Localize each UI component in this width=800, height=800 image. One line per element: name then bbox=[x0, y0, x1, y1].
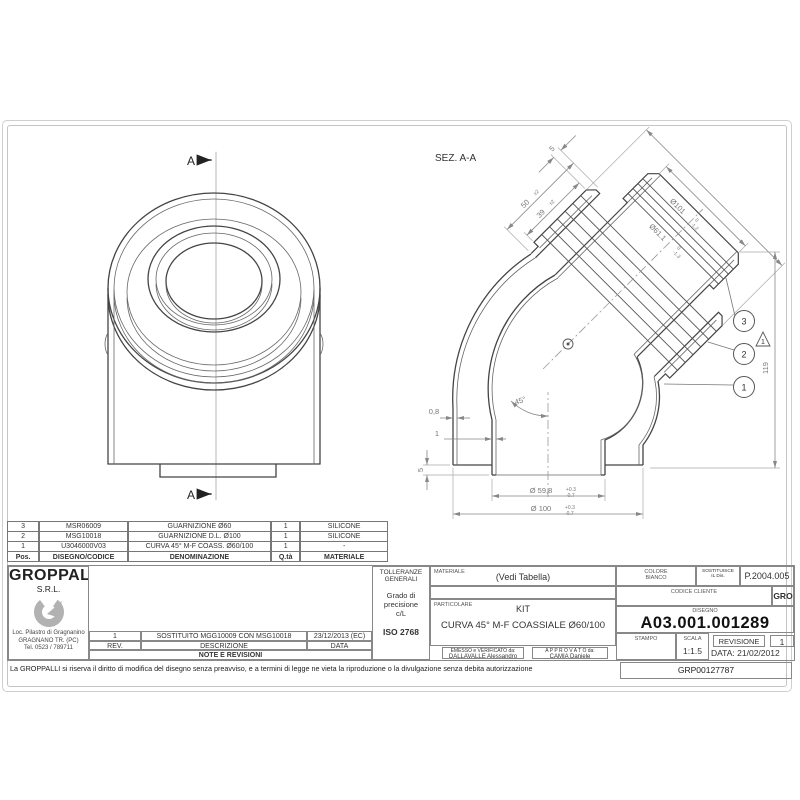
datum-dot bbox=[563, 339, 573, 349]
dim-100: Ø 100 bbox=[531, 504, 551, 513]
company-suffix: S.R.L. bbox=[9, 584, 88, 594]
section-label-top: A bbox=[187, 154, 195, 168]
male-end: 39 ±2 50 ±2 5 bbox=[434, 86, 785, 437]
drawing-number-cell: DISEGNO A03.001.001289 bbox=[616, 606, 794, 633]
company-address1: Loc. Pilastro di Gragnanino bbox=[9, 630, 88, 638]
dim-598: Ø 59,8 bbox=[530, 486, 553, 495]
table-row: 1 U3046000V03 CURVA 45° M-F COASS. Ø60/1… bbox=[7, 541, 388, 551]
replaces-value: P.2004.005 bbox=[740, 566, 794, 586]
drawing-number: A03.001.001289 bbox=[617, 614, 793, 633]
material-cell: MATERIALE (Vedi Tabella) bbox=[430, 566, 616, 586]
table-header-row: Pos. DISEGNO/CODICE DENOMINAZIONE Q.tà M… bbox=[7, 551, 388, 562]
color-cell: COLORE BIANCO bbox=[616, 566, 696, 586]
angle-dim: 45° bbox=[511, 395, 548, 416]
client-code-cell: CODICE CLIENTE bbox=[616, 586, 772, 606]
dim-50: 50 bbox=[519, 198, 531, 210]
dim-39: 39 bbox=[535, 208, 547, 220]
svg-text:2: 2 bbox=[741, 350, 746, 360]
elbow-body bbox=[453, 254, 660, 475]
dim-39-tol: ±2 bbox=[548, 199, 556, 207]
issued-cell: EMESSO e VERIFICATO da: DALLAVALLE Aless… bbox=[442, 647, 524, 659]
client-code-value: GRO bbox=[772, 586, 794, 606]
rev-col-header: DESCRIZIONE bbox=[141, 641, 307, 650]
parts-table: 3 MSR06009 GUARNIZIONE Ø60 1 SILICONE 2 … bbox=[7, 521, 388, 562]
rev-description: SOSTITUITO MGG10009 CON MSG10018 bbox=[141, 631, 307, 641]
dim-08: 0,8 bbox=[429, 407, 439, 416]
table-row: 3 MSR06009 GUARNIZIONE Ø60 1 SILICONE bbox=[7, 521, 388, 531]
revision-label-box: REVISIONE bbox=[713, 635, 765, 647]
company-address2: GRAGNANO TR. (PC) bbox=[9, 638, 88, 646]
dim-100-tollo: -0.7 bbox=[565, 511, 574, 517]
stamp-cell: STAMPO bbox=[616, 633, 676, 660]
dim-61: Ø61.1 bbox=[647, 222, 668, 243]
table-row: 2 MSG10018 GUARNIZIONE D.L. Ø100 1 SILIC… bbox=[7, 531, 388, 541]
dim-5-left: 5 bbox=[416, 468, 425, 472]
drawing-views: A A bbox=[0, 0, 800, 800]
dim-5-top: 5 bbox=[547, 144, 556, 153]
dim-101-tol: 0 -1.2 bbox=[689, 217, 704, 232]
company-cell: GROPPALLI S.R.L. Loc. Pilastro di Gragna… bbox=[8, 566, 89, 660]
svg-text:-1.3: -1.3 bbox=[671, 250, 681, 260]
revision-triangle: 1 bbox=[756, 332, 770, 346]
section-label-bottom: A bbox=[187, 488, 195, 502]
scale-cell: SCALA 1:1.5 bbox=[676, 633, 709, 660]
svg-text:1: 1 bbox=[741, 383, 746, 393]
dim-45deg: 45° bbox=[513, 395, 527, 407]
part-description: CURVA 45° M-F COASSIALE Ø60/100 bbox=[431, 620, 615, 631]
replaces-cell: SOSTITUISCE IL Dis. bbox=[696, 566, 740, 586]
rev-col-header: REV. bbox=[89, 641, 141, 650]
step5-dim bbox=[423, 450, 489, 490]
rev-footer: NOTE E REVISIONI bbox=[89, 650, 372, 660]
tolerances-title: TOLLERANZE GENERALI bbox=[373, 569, 429, 583]
rev-col-header: DATA bbox=[307, 641, 372, 650]
dim-50-tol: ±2 bbox=[533, 189, 541, 197]
company-logo bbox=[31, 595, 67, 629]
rev-date: 23/12/2013 (EC) bbox=[307, 631, 372, 641]
iso-standard: ISO 2768 bbox=[373, 627, 429, 637]
section-view-title: SEZ. A-A bbox=[435, 153, 476, 164]
dim-598-tollo: -0.7 bbox=[566, 493, 575, 499]
front-view-outline bbox=[108, 193, 320, 477]
disclaimer-note: La GROPPALLI si riserva il diritto di mo… bbox=[10, 664, 618, 673]
dim-61-tol: 0 -1.3 bbox=[671, 245, 686, 260]
tolerances-cell: TOLLERANZE GENERALI Grado di precisione … bbox=[372, 566, 430, 660]
approved-cell: A P P R O V A T O da: CAMIA Daniele bbox=[532, 647, 608, 659]
male-dim-extlines bbox=[492, 92, 785, 385]
signatures-row: EMESSO e VERIFICATO da: DALLAVALLE Aless… bbox=[430, 646, 616, 660]
elbow-body-inner bbox=[457, 258, 657, 475]
dim-1: 1 bbox=[435, 429, 439, 438]
company-phone: Tel. 0523 / 789711 bbox=[9, 645, 88, 653]
particolare-label: PARTICOLARE bbox=[434, 602, 472, 608]
drawing-sheet: A A bbox=[0, 0, 800, 800]
scale-value: 1:1.5 bbox=[677, 646, 708, 656]
grp-code-box: GRP00127787 bbox=[620, 662, 792, 679]
company-name: GROPPALLI bbox=[9, 567, 88, 584]
section-view: SEZ. A-A bbox=[416, 86, 785, 519]
precision-grade: Grado di precisione c/L bbox=[373, 591, 429, 618]
revision-value-box: 1 bbox=[770, 635, 794, 647]
date-field: DATA: 21/02/2012 bbox=[711, 648, 795, 660]
svg-text:-1.2: -1.2 bbox=[689, 222, 699, 232]
title-block: GROPPALLI S.R.L. Loc. Pilastro di Gragna… bbox=[7, 565, 795, 661]
material-label: MATERIALE bbox=[434, 569, 465, 575]
svg-text:1: 1 bbox=[761, 339, 765, 346]
particolare-cell: PARTICOLARE KIT CURVA 45° M-F COASSIALE … bbox=[430, 599, 616, 646]
rev-value: 1 bbox=[89, 631, 141, 641]
svg-text:3: 3 bbox=[741, 317, 746, 327]
dim-119: 119 bbox=[761, 362, 770, 374]
front-view: A A bbox=[105, 152, 323, 502]
